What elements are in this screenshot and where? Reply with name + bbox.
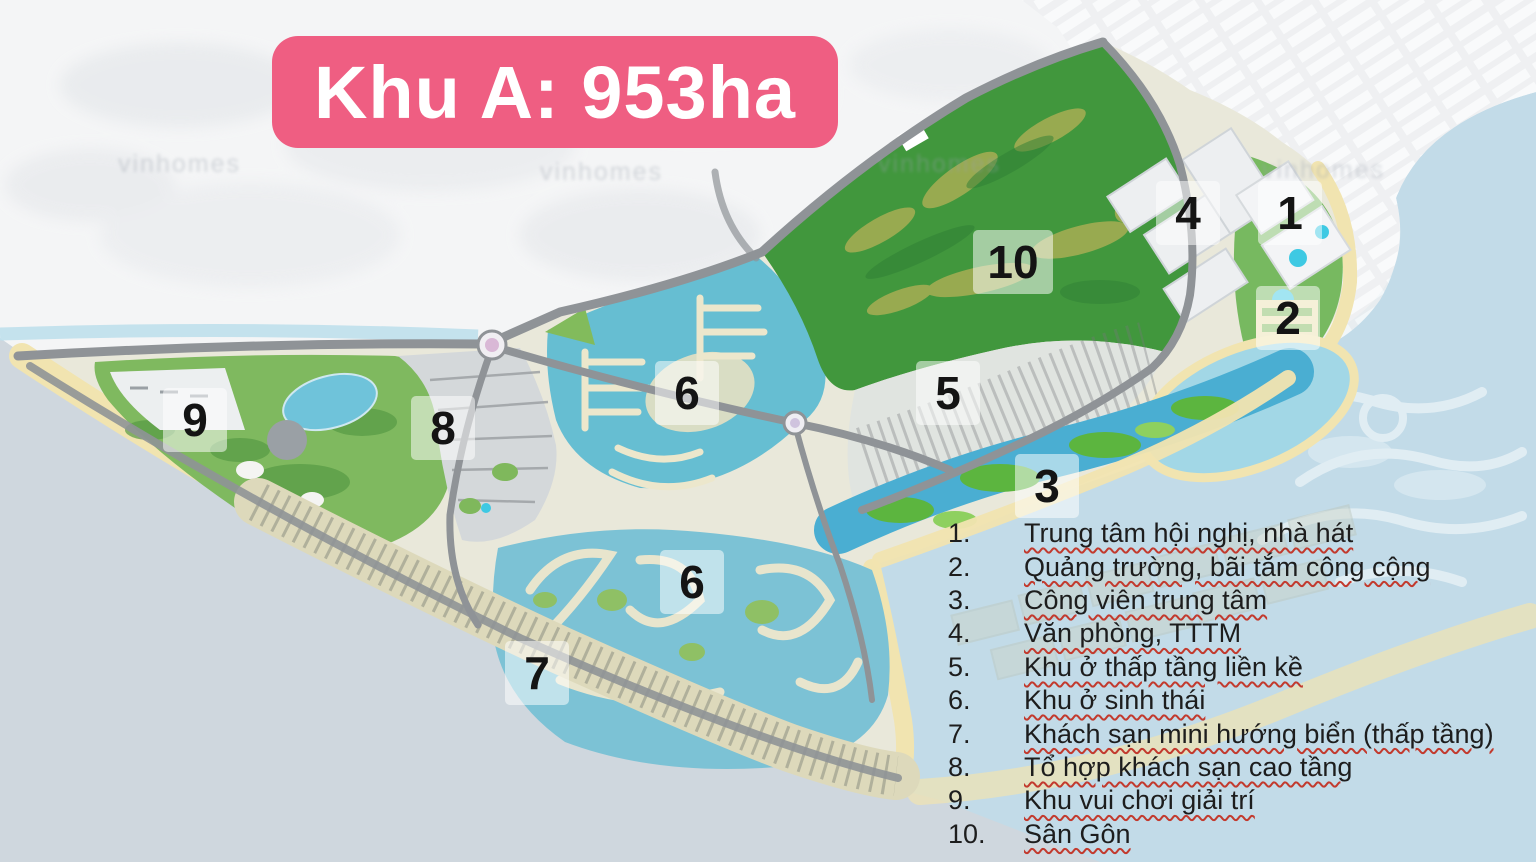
legend-item-label: Công viên trung tâm [1024, 585, 1494, 616]
legend-item-number: 4. [930, 618, 1024, 649]
svg-text:6: 6 [679, 556, 705, 608]
legend-item-label: Khu ở thấp tầng liền kề [1024, 652, 1494, 683]
svg-text:10: 10 [987, 236, 1038, 288]
park-plaza [267, 420, 307, 460]
watermark-text: vinhomes [118, 150, 241, 179]
map-marker-4: 4 [1156, 181, 1220, 245]
svg-text:4: 4 [1175, 187, 1201, 239]
watermark-text: vinhomes [540, 158, 663, 187]
map-marker-8: 8 [411, 396, 475, 460]
legend-item-number: 9. [930, 785, 1024, 816]
svg-text:8: 8 [430, 402, 456, 454]
legend-item: 6. Khu ở sinh thái [930, 684, 1494, 717]
river [0, 330, 478, 336]
legend-item: 9. Khu vui chơi giải trí [930, 784, 1494, 817]
legend-item-number: 7. [930, 719, 1024, 750]
map-marker-6-south: 6 [660, 550, 724, 614]
legend-item-label: Khu ở sinh thái [1024, 685, 1494, 716]
svg-text:9: 9 [182, 394, 208, 446]
svg-text:2: 2 [1275, 292, 1301, 344]
svg-text:3: 3 [1034, 460, 1060, 512]
watermark-text: vinhomes [878, 150, 1001, 179]
legend-item-label: Khách sạn mini hướng biển (thấp tầng) [1024, 719, 1494, 750]
map-marker-3: 3 [1015, 454, 1079, 518]
legend-item: 4. Văn phòng, TTTM [930, 617, 1494, 650]
map-marker-7: 7 [505, 641, 569, 705]
legend-item: 2. Quảng trường, bãi tắm công cộng [930, 550, 1494, 583]
legend-item-number: 8. [930, 752, 1024, 783]
area-title-text: Khu A: 953ha [314, 50, 796, 135]
legend-item-number: 1. [930, 518, 1024, 549]
watermark-text: vinhomes [1262, 156, 1385, 185]
svg-text:6: 6 [674, 367, 700, 419]
legend-item-label: Quảng trường, bãi tắm công cộng [1024, 552, 1494, 583]
map-marker-10: 10 [973, 230, 1053, 294]
legend-item: 5. Khu ở thấp tầng liền kề [930, 651, 1494, 684]
roundabout-west [478, 331, 506, 359]
svg-text:1: 1 [1277, 187, 1303, 239]
legend-item: 1. Trung tâm hội nghị, nhà hát [930, 517, 1494, 550]
legend-item: 8. Tổ hợp khách sạn cao tầng [930, 751, 1494, 784]
legend-item: 3. Công viên trung tâm [930, 584, 1494, 617]
legend-item: 7. Khách sạn mini hướng biển (thấp tầng) [930, 717, 1494, 750]
map-marker-2: 2 [1256, 286, 1320, 350]
map-marker-9: 9 [163, 388, 227, 452]
legend-item-label: Tổ hợp khách sạn cao tầng [1024, 752, 1494, 783]
legend-item-number: 2. [930, 552, 1024, 583]
legend-item-label: Khu vui chơi giải trí [1024, 785, 1494, 816]
roundabout-central [784, 412, 806, 434]
area-title-badge: Khu A: 953ha [272, 36, 838, 148]
legend-item: 10. Sân Gôn [930, 818, 1494, 851]
legend-item-label: Văn phòng, TTTM [1024, 618, 1494, 649]
map-marker-5: 5 [916, 361, 980, 425]
legend-item-label: Sân Gôn [1024, 819, 1494, 850]
legend-item-number: 3. [930, 585, 1024, 616]
svg-text:7: 7 [524, 647, 550, 699]
map-marker-6-north: 6 [655, 361, 719, 425]
legend-item-number: 10. [930, 819, 1024, 850]
svg-text:5: 5 [935, 367, 961, 419]
legend-item-label: Trung tâm hội nghị, nhà hát [1024, 518, 1494, 549]
legend: 1. Trung tâm hội nghị, nhà hát 2. Quảng … [930, 517, 1494, 851]
legend-item-number: 5. [930, 652, 1024, 683]
legend-item-number: 6. [930, 685, 1024, 716]
map-marker-1: 1 [1258, 181, 1322, 245]
